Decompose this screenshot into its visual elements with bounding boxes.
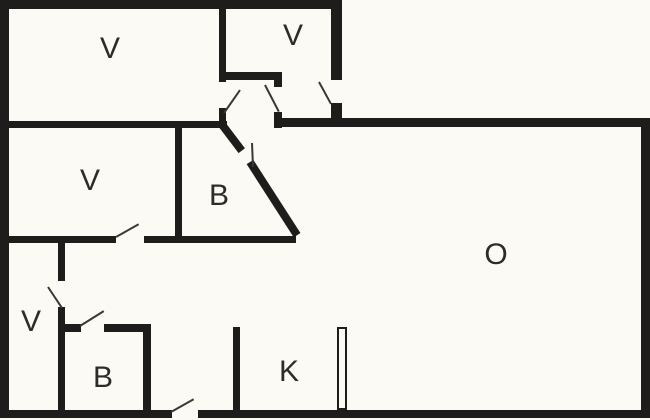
- wall-b-bottom-top-left: [58, 324, 81, 332]
- door-v-mid-leaf-icon: [116, 223, 140, 238]
- wall-vtop-small-bottom: [219, 72, 282, 80]
- wall-k-partition: [233, 327, 240, 412]
- room-v-corridor-label: V: [21, 307, 41, 337]
- door-b-bottom-leaf-icon: [79, 310, 104, 327]
- room-b-bottom-label: B: [93, 363, 113, 393]
- wall-b-diagonal-upper: [217, 120, 245, 154]
- wall-outer-step-upper: [331, 0, 342, 80]
- wall-b-diagonal-lower: [247, 160, 301, 237]
- door-corridor-leaf-icon: [47, 286, 63, 308]
- wall-corridor-vert-upper: [58, 243, 65, 281]
- room-v-mid-left-label: V: [80, 166, 100, 196]
- wall-outer-top: [0, 0, 342, 9]
- door-entry-bottom-leaf-icon: [171, 398, 195, 413]
- wall-vtl-bottom: [0, 121, 227, 128]
- room-b-middle-label: B: [209, 181, 229, 211]
- door-entry-top-leaf-icon: [318, 82, 332, 105]
- door-hall-middle-leaf-icon: [264, 85, 280, 113]
- room-v-top-small-label: V: [283, 21, 303, 51]
- door-b-diagonal-leaf-icon: [251, 143, 254, 167]
- wall-corridor-vert-lower: [58, 307, 65, 412]
- wall-outer-right: [641, 118, 650, 418]
- room-v-top-left-label: V: [100, 34, 120, 64]
- wall-mid-horizontal-right: [144, 236, 296, 243]
- floor-plan: VVVBVBKO: [0, 0, 650, 420]
- door-hall-left-leaf-icon: [223, 89, 241, 113]
- door-panel-o-room: [337, 327, 347, 410]
- wall-mid-horizontal-left: [0, 236, 116, 243]
- wall-hall-mid-stub-upper: [274, 72, 282, 87]
- wall-b-bottom-right: [143, 324, 151, 412]
- wall-o-room-top: [274, 118, 650, 127]
- wall-b-middle-left: [175, 121, 182, 243]
- wall-hall-mid-stub-lower: [274, 112, 282, 128]
- room-k-kitchen-label: K: [279, 357, 299, 387]
- room-o-living-label: O: [484, 240, 507, 270]
- wall-outer-left: [0, 0, 9, 418]
- wall-outer-bottom-right: [198, 410, 650, 418]
